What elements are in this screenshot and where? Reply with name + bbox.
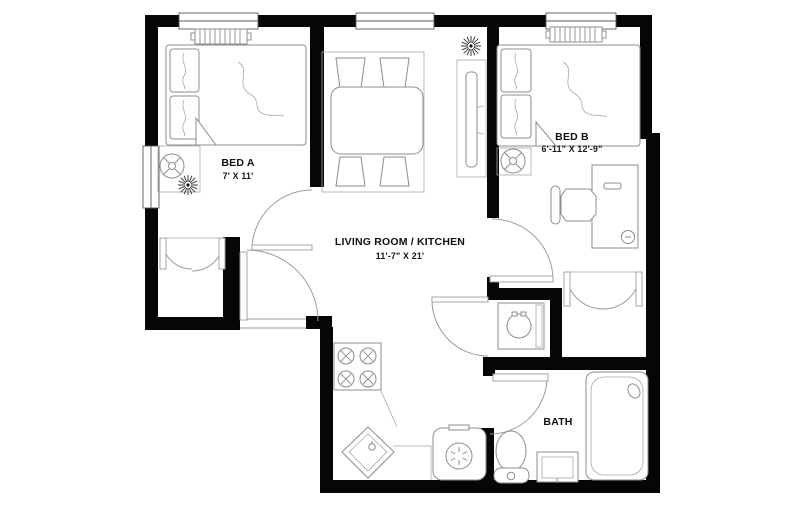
bed-a-bed-icon <box>166 45 306 145</box>
dryer-icon <box>433 425 486 480</box>
wall-segment <box>483 357 660 370</box>
dining-set-icon <box>322 52 424 192</box>
bed-b-nightstand-icon <box>497 148 531 175</box>
wall-segment <box>223 237 240 330</box>
bed-b-dims: 6'-11" X 12'-9" <box>541 144 602 154</box>
radiator-icon <box>546 27 606 42</box>
kitchen-sink-icon <box>342 427 394 478</box>
laundry-door-icon <box>432 297 488 356</box>
bath-label: BATH <box>543 416 572 428</box>
desk-chair-icon <box>551 186 596 224</box>
vanity-sink-icon <box>537 452 578 483</box>
window-icon <box>143 146 159 208</box>
tv-console-icon <box>457 60 486 177</box>
plant-icon <box>178 175 198 195</box>
radiator-icon <box>191 29 251 44</box>
wall-segment <box>145 15 158 147</box>
stove-icon <box>334 343 381 390</box>
plant-icon <box>461 36 481 56</box>
bed-a-dims: 7' X 11' <box>223 171 254 181</box>
bed-b-label: BED B <box>555 131 589 143</box>
washer-icon <box>498 303 544 349</box>
kitchen-counter <box>381 391 431 480</box>
window-icon <box>179 13 258 29</box>
laundry-alcove <box>498 303 544 349</box>
bathtub-icon <box>586 372 648 480</box>
toilet-icon <box>494 431 529 483</box>
wall-segment <box>256 15 358 27</box>
floor-plan-page: BED A 7' X 11' BED B 6'-11" X 12'-9" LIV… <box>0 0 800 518</box>
wall-segment <box>320 327 333 485</box>
closet-b-doors-icon <box>564 272 642 309</box>
wall-segment <box>483 357 495 376</box>
bed-a-label: BED A <box>221 157 254 169</box>
wall-segment <box>145 207 158 330</box>
floor-plan-drawing: BED A 7' X 11' BED B 6'-11" X 12'-9" LIV… <box>0 0 800 518</box>
bed-b-door-icon <box>490 219 553 282</box>
wall-segment <box>640 15 652 139</box>
closet-a-doors-icon <box>160 238 225 271</box>
bath-door-icon <box>490 374 548 434</box>
desk-icon <box>592 165 638 248</box>
living-room-label: LIVING ROOM / KITCHEN <box>335 236 465 248</box>
bed-a-door-icon <box>252 190 312 250</box>
window-icon <box>356 13 434 29</box>
living-room-dims: 11'-7" X 21' <box>376 251 424 261</box>
